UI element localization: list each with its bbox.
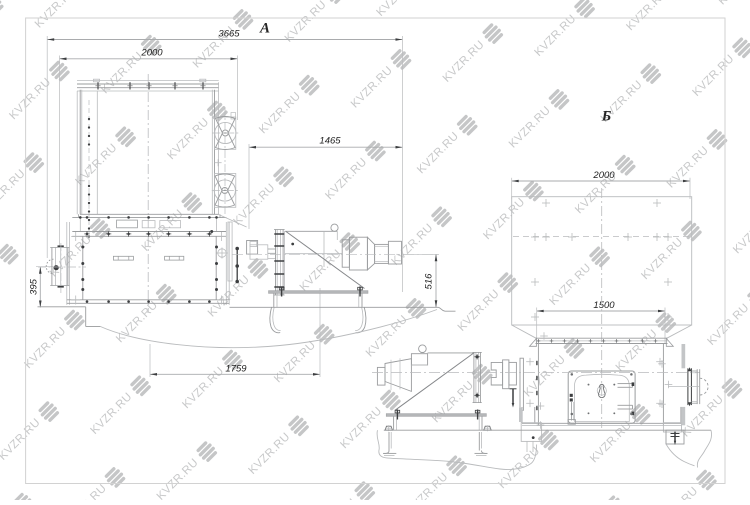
svg-text:1759: 1759 bbox=[225, 363, 247, 374]
svg-text:395: 395 bbox=[29, 278, 40, 295]
svg-text:516: 516 bbox=[424, 273, 435, 290]
svg-text:3665: 3665 bbox=[218, 29, 240, 40]
svg-text:А: А bbox=[259, 21, 270, 37]
svg-text:1500: 1500 bbox=[593, 300, 615, 311]
svg-text:2000: 2000 bbox=[140, 48, 163, 59]
svg-text:Б: Б bbox=[601, 109, 612, 125]
svg-text:2000: 2000 bbox=[592, 170, 615, 181]
svg-text:1465: 1465 bbox=[319, 136, 341, 147]
